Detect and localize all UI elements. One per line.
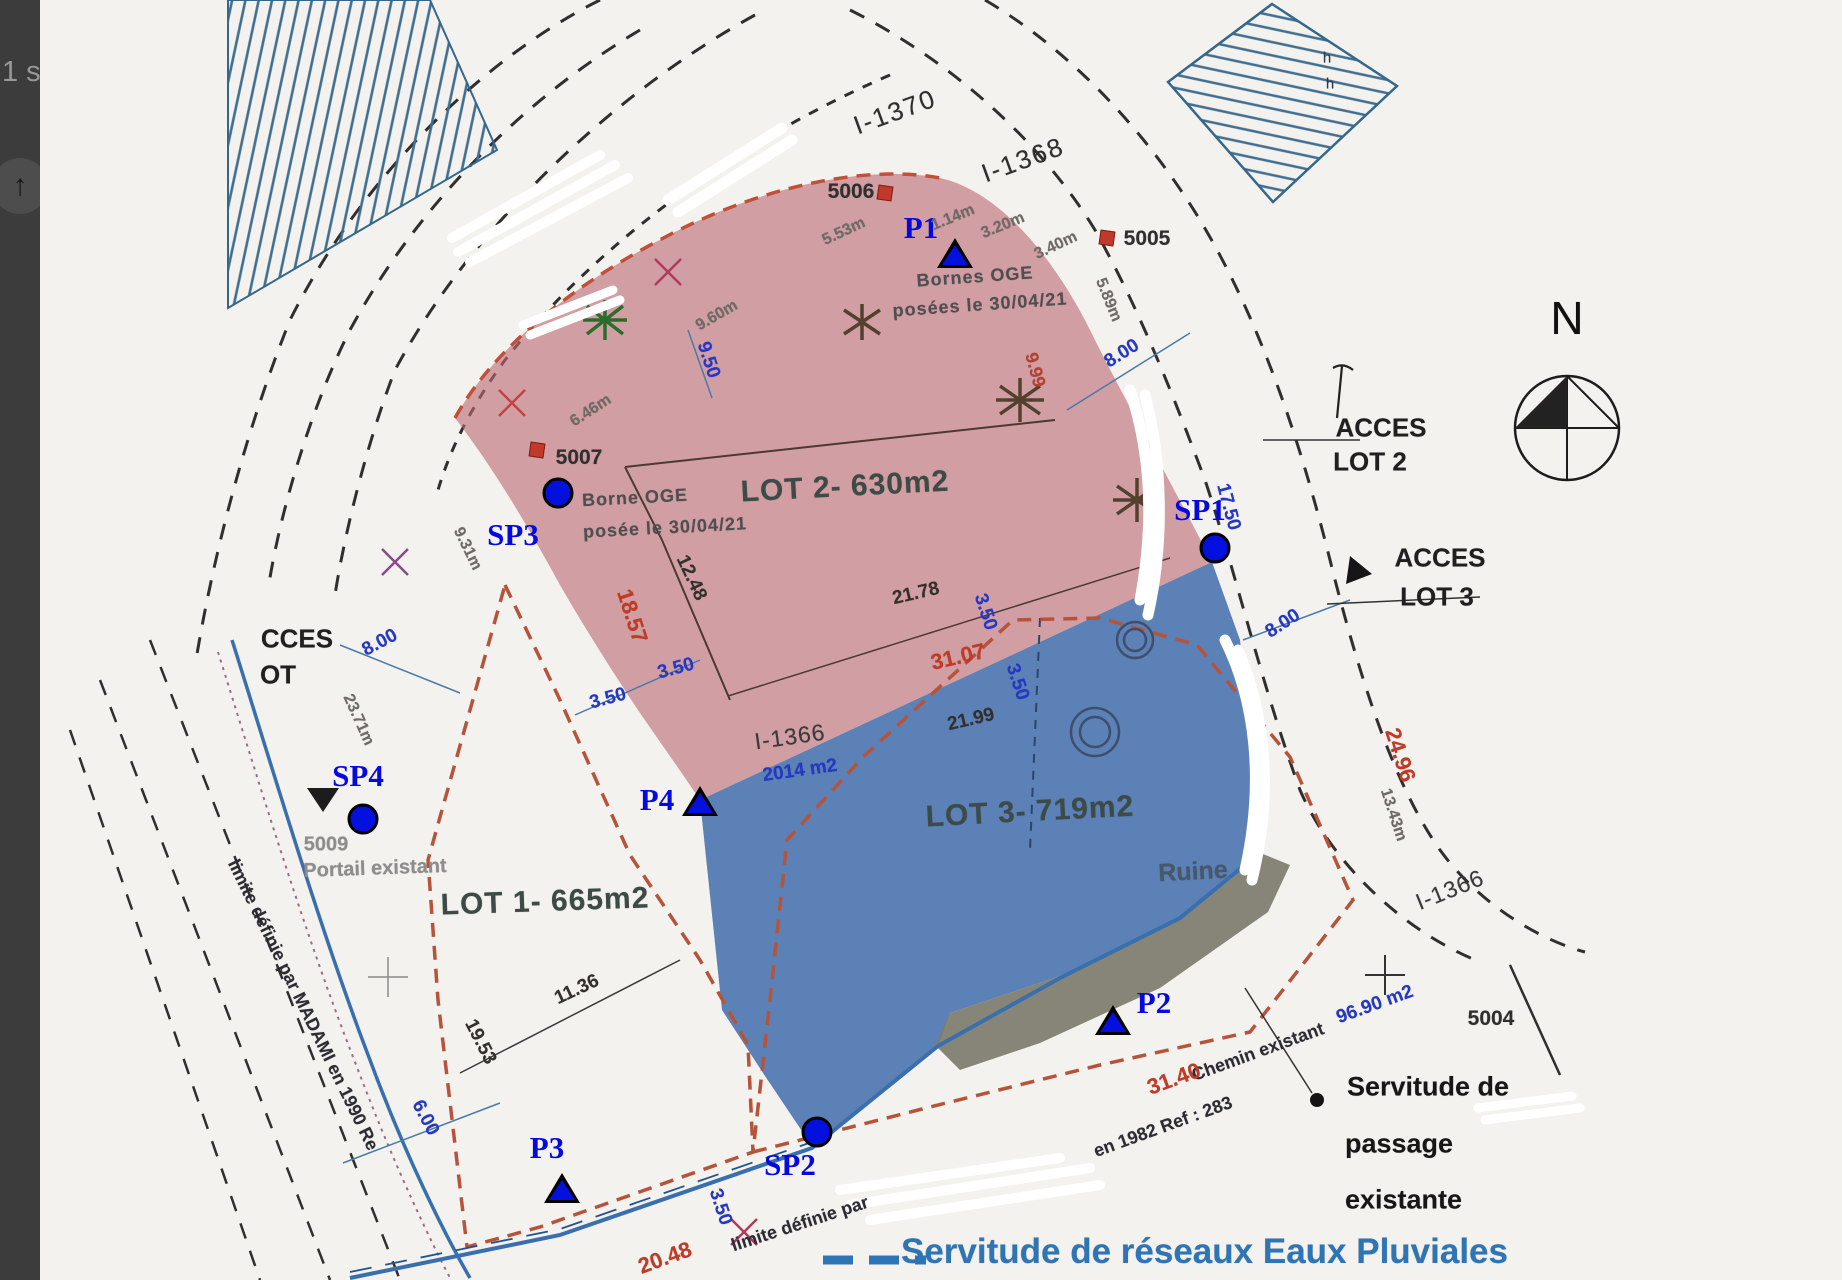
survey-point-p2-triangle xyxy=(1095,1005,1131,1035)
map-label-lot-3: LOT 3 xyxy=(1400,582,1474,613)
survey-point-p4-triangle xyxy=(682,786,718,816)
map-label-lot-3-719m2: LOT 3- 719m2 xyxy=(925,790,1135,835)
map-label-6-00: 6.00 xyxy=(407,1097,444,1140)
map-label-portail-existant: Portail existant xyxy=(303,855,447,883)
map-label-p4: P4 xyxy=(640,782,674,818)
map-label-3-50: 3.50 xyxy=(969,591,1001,633)
survey-point-sp1-circle xyxy=(1200,533,1231,564)
viewer-sidebar: 1 s ↑ xyxy=(0,0,40,1280)
map-label-5005: 5005 xyxy=(1124,227,1171,251)
survey-point-sp3-circle xyxy=(543,478,574,509)
map-label-2014-m2: 2014 m2 xyxy=(761,755,838,787)
map-label-servitude-de: Servitude de xyxy=(1347,1072,1509,1103)
map-label-31-40: 31.40 xyxy=(1144,1057,1205,1100)
map-label-3-40m: 3.40m xyxy=(1032,228,1081,263)
map-label-p2: P2 xyxy=(1137,985,1171,1021)
arrow-up-icon: ↑ xyxy=(13,169,28,203)
map-label-5009: 5009 xyxy=(304,834,349,857)
borne-marker-5007 xyxy=(530,443,545,458)
map-label-5-53m: 5.53m xyxy=(820,214,869,249)
map-label-pos-e-le-30-04-21: posée le 30/04/21 xyxy=(583,513,748,543)
map-label-5004: 5004 xyxy=(1468,1007,1515,1031)
map-label-9-50: 9.50 xyxy=(692,339,724,381)
borne-marker-5006 xyxy=(878,186,893,201)
map-label-31-07: 31.07 xyxy=(928,638,988,676)
survey-point-sp2-circle xyxy=(802,1117,833,1148)
map-label-lot-2: LOT 2 xyxy=(1333,447,1407,478)
plan-labels-layer: I-1370I-1368I-1366I-13665006500550075009… xyxy=(40,0,1842,1280)
map-label-21-78: 21.78 xyxy=(890,578,941,610)
map-label-21-99: 21.99 xyxy=(945,704,996,736)
map-label-3-50: 3.50 xyxy=(655,654,696,685)
map-label-h: h xyxy=(1323,50,1331,67)
map-label-23-71m: 23.71m xyxy=(339,692,378,749)
map-label-limite-d-finie-par-madami-en-199: limite définie par MADAMI en 1990 Re xyxy=(223,856,383,1154)
map-label-3-20m: 3.20m xyxy=(979,209,1028,243)
plan-page: I-1370I-1368I-1366I-13665006500550075009… xyxy=(40,0,1842,1280)
map-label-96-90-m2: 96.90 m2 xyxy=(1334,981,1417,1029)
map-label-i-1366: I-1366 xyxy=(1412,864,1488,916)
map-label-8-00: 8.00 xyxy=(359,625,402,662)
map-label-9-60m: 9.60m xyxy=(693,297,741,335)
map-label-sp4: SP4 xyxy=(332,758,384,794)
survey-point-p1-triangle xyxy=(937,238,973,268)
map-label-p3: P3 xyxy=(530,1130,564,1166)
map-label-11-36: 11.36 xyxy=(551,970,602,1010)
map-label-8-00: 8.00 xyxy=(1262,605,1305,644)
map-label-lot-2-630m2: LOT 2- 630m2 xyxy=(740,465,950,510)
map-label-limite-d-finie-par: limite définie par xyxy=(729,1192,872,1256)
map-label-3-50: 3.50 xyxy=(587,684,628,715)
map-label-en-1982-ref-283: en 1982 Ref : 283 xyxy=(1091,1092,1235,1162)
borne-marker-5005 xyxy=(1100,231,1115,246)
map-label-9-31m: 9.31m xyxy=(449,525,485,574)
sidebar-partial-text: 1 s xyxy=(2,56,41,89)
map-label-9-99: 9.99 xyxy=(1020,350,1049,389)
map-label-existante: existante xyxy=(1345,1185,1462,1216)
map-label-ot: OT xyxy=(260,660,296,691)
map-label-ruine: Ruine xyxy=(1158,856,1229,889)
map-label-i-1368: I-1368 xyxy=(977,131,1068,189)
survey-point-p3-triangle xyxy=(544,1173,580,1203)
map-label-5006: 5006 xyxy=(828,180,875,204)
map-label-20-48: 20.48 xyxy=(635,1236,696,1279)
map-label-acces: ACCES xyxy=(1335,413,1426,444)
map-label-h: h xyxy=(1326,76,1334,93)
map-label-3-50: 3.50 xyxy=(704,1186,736,1228)
map-label-19-53: 19.53 xyxy=(459,1016,500,1068)
map-label-i-1366: I-1366 xyxy=(753,719,827,756)
map-label-passage: passage xyxy=(1345,1129,1453,1160)
map-label-sp2: SP2 xyxy=(764,1147,816,1183)
map-label-5007: 5007 xyxy=(556,446,603,470)
map-label-1-14m: 1.14m xyxy=(929,201,978,235)
map-label-lot-1-665m2: LOT 1- 665m2 xyxy=(440,881,650,922)
map-label-acces: ACCES xyxy=(1394,543,1485,574)
map-label-cces: CCES xyxy=(261,624,333,655)
map-label-6-46m: 6.46m xyxy=(567,391,615,431)
map-label-borne-oge: Borne OGE xyxy=(582,485,689,512)
map-label-5-89m: 5.89m xyxy=(1091,276,1125,325)
map-label-servitude-de-r-seaux-eaux-pluvia: Servitude de réseaux Eaux Pluviales xyxy=(901,1232,1508,1272)
map-label-13-43m: 13.43m xyxy=(1376,786,1410,843)
map-label-18-57: 18.57 xyxy=(611,586,653,646)
map-label-12-48: 12.48 xyxy=(671,552,711,604)
map-label-n: N xyxy=(1550,291,1583,345)
map-label-bornes-oge: Bornes OGE xyxy=(916,262,1034,291)
map-label-sp3: SP3 xyxy=(487,517,539,553)
survey-point-sp4-circle xyxy=(348,804,379,835)
map-label-24-96: 24.96 xyxy=(1379,725,1421,785)
map-label-3-50: 3.50 xyxy=(1001,661,1033,703)
map-label-chemin-existant: Chemin existant xyxy=(1189,1018,1327,1085)
map-label-i-1370: I-1370 xyxy=(849,83,940,141)
map-label-8-00: 8.00 xyxy=(1100,335,1143,373)
map-label-pos-es-le-30-04-21: posées le 30/04/21 xyxy=(892,288,1068,321)
